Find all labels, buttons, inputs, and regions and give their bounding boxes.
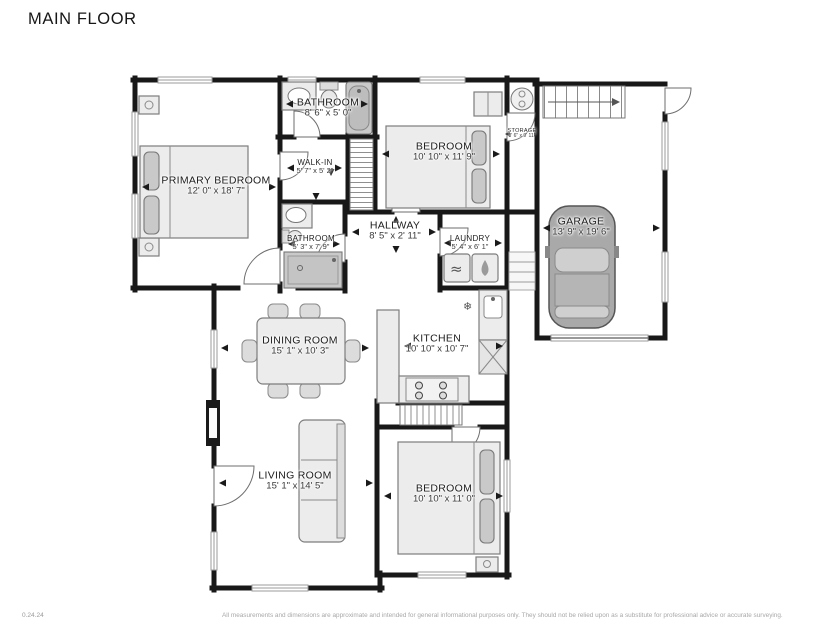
garage-door [551, 335, 648, 341]
room-label-dining-room: DINING ROOM 15' 1" x 10' 3" [262, 335, 338, 358]
room-dims: 13' 9" x 19' 6" [552, 228, 609, 239]
hall-closet [350, 139, 373, 210]
pillow-icon [144, 152, 159, 190]
window [504, 460, 510, 512]
chair-icon [300, 383, 320, 398]
room-dims: 3' 6" x 9' 11" [508, 134, 537, 140]
room-label-bathroom-hall: BATHROOM 5' 3" x 7' 9" [287, 234, 335, 252]
room-label-walk-in: WALK-IN 5' 7" x 5' 2" [297, 158, 334, 176]
room-label-bathroom-top: BATHROOM 8' 6" x 5' 0" [297, 97, 359, 120]
toilet-icon [320, 82, 338, 90]
counter-icon [377, 310, 399, 403]
room-label-kitchen: KITCHEN 10' 10" x 10' 7" [406, 333, 469, 356]
footer-disclaimer: All measurements and dimensions are appr… [222, 612, 822, 619]
room-dims: 10' 10" x 10' 7" [406, 345, 469, 356]
window [252, 585, 308, 591]
bedroom-bottom-furniture [398, 442, 500, 572]
footer-version: 0.24.24 [22, 612, 44, 619]
window [420, 77, 465, 83]
floorplan-drawing: ≈ [0, 0, 828, 640]
nightstand-icon [139, 238, 159, 256]
room-dims: 5' 3" x 7' 9" [287, 243, 335, 252]
pillow-icon [144, 196, 159, 234]
door-arc [244, 248, 280, 284]
room-label-garage: GARAGE 13' 9" x 19' 6" [552, 216, 609, 239]
floorplan-page: MAIN FLOOR [0, 0, 828, 640]
chair-icon [300, 304, 320, 319]
room-dims: 8' 5" x 2' 11" [369, 232, 420, 243]
chair-icon [345, 340, 360, 362]
room-dims: 10' 10" x 11' 0" [413, 495, 475, 506]
washer-waves-icon: ≈ [450, 260, 463, 278]
room-label-hallway: HALLWAY 8' 5" x 2' 11" [369, 220, 420, 243]
window [211, 330, 217, 368]
chair-icon [268, 304, 288, 319]
nightstand-icon [139, 96, 159, 114]
pillow-icon [480, 450, 494, 494]
room-label-primary-bedroom: PRIMARY BEDROOM 12' 0" x 18' 7" [161, 175, 270, 198]
pillow-icon [472, 169, 486, 203]
room-label-bedroom-bottom: BEDROOM 10' 10" x 11' 0" [413, 483, 475, 506]
room-dims: 12' 0" x 18' 7" [161, 187, 270, 198]
laundry-fixtures: ≈ [444, 254, 498, 282]
entry-steps [509, 252, 535, 290]
stove-icon [406, 378, 458, 401]
room-dims: 5' 7" x 5' 2" [297, 167, 334, 176]
room-dims: 15' 1" x 14' 5" [258, 482, 331, 493]
window [662, 252, 668, 302]
bedroom-hall-closet [400, 405, 462, 425]
closet-hatch [400, 405, 462, 425]
room-dims: 15' 1" x 10' 3" [262, 347, 338, 358]
storage-fixtures [511, 88, 533, 110]
sink-icon [286, 208, 306, 223]
room-label-storage: STORAGE 3' 6" x 9' 11" [508, 128, 537, 140]
chair-icon [242, 340, 257, 362]
door-arc [665, 88, 691, 114]
door-arc [214, 466, 254, 506]
garage-fixtures [543, 86, 625, 328]
room-label-bedroom-top: BEDROOM 10' 10" x 11' 9" [413, 141, 475, 164]
window [211, 532, 217, 570]
closet-hatch [350, 139, 373, 210]
room-dims: 10' 10" x 11' 9" [413, 153, 475, 164]
snowflake-icon: ❄ [463, 300, 472, 313]
room-dims: 5' 4" x 6' 1" [450, 243, 490, 252]
room-label-laundry: LAUNDRY 5' 4" x 6' 1" [450, 234, 490, 252]
window [132, 112, 138, 156]
room-label-living-room: LIVING ROOM 15' 1" x 14' 5" [258, 470, 331, 493]
window [418, 572, 466, 578]
nightstand-icon [476, 557, 498, 572]
window [132, 194, 138, 238]
room-dims: 8' 6" x 5' 0" [297, 109, 359, 120]
pillow-icon [480, 499, 494, 543]
window [158, 77, 212, 83]
window [662, 122, 668, 170]
chair-icon [268, 383, 288, 398]
